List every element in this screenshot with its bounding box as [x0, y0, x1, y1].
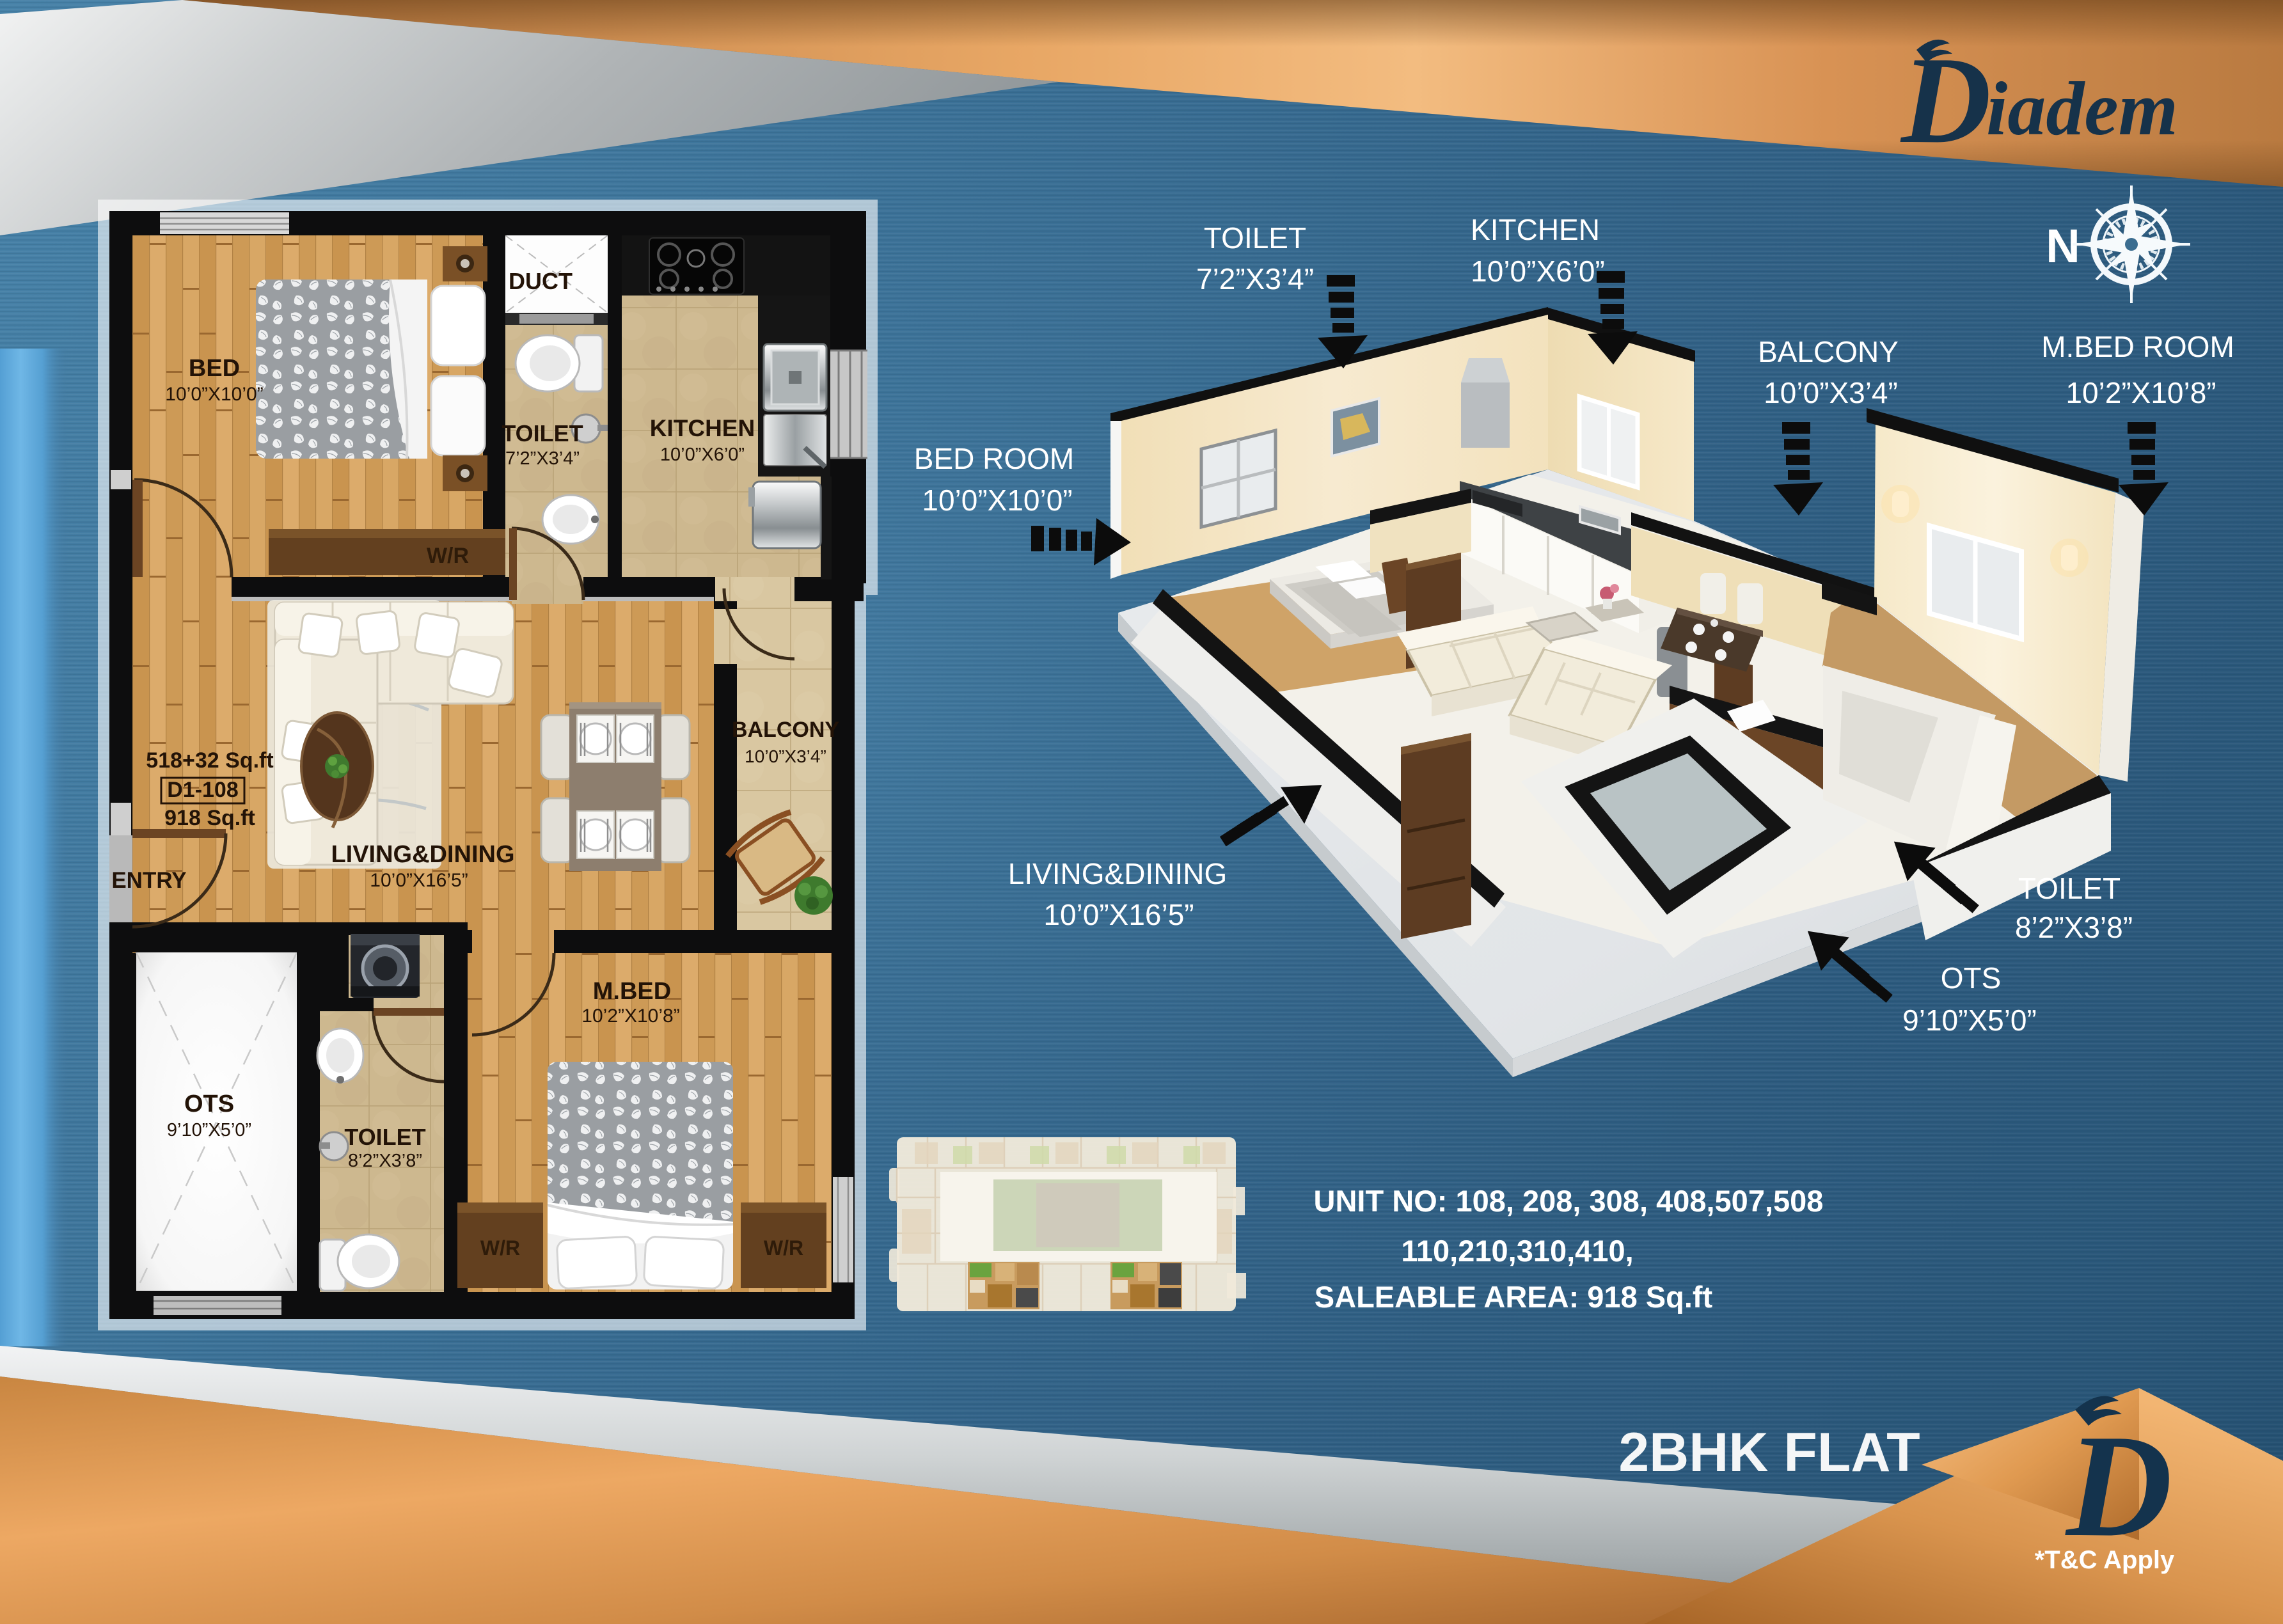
svg-text:TOILET: TOILET	[344, 1124, 425, 1150]
svg-text:TOILET: TOILET	[1204, 221, 1306, 255]
svg-text:W/R: W/R	[427, 544, 469, 568]
svg-text:OTS: OTS	[1941, 961, 2002, 995]
svg-text:W/R: W/R	[764, 1236, 803, 1259]
svg-text:BALCONY: BALCONY	[1758, 335, 1899, 368]
svg-text:2BHK FLAT: 2BHK FLAT	[1618, 1422, 1920, 1483]
svg-text:iadem: iadem	[1986, 66, 2178, 151]
svg-text:7’2”X3’4”: 7’2”X3’4”	[1196, 262, 1314, 296]
svg-text:D: D	[2065, 1404, 2172, 1567]
svg-text:M.BED ROOM: M.BED ROOM	[2041, 330, 2234, 363]
svg-text:BED ROOM: BED ROOM	[914, 442, 1074, 475]
svg-text:918 Sq.ft: 918 Sq.ft	[164, 806, 255, 830]
svg-text:10’0”X3’4”: 10’0”X3’4”	[745, 746, 826, 766]
svg-text:N: N	[2046, 219, 2080, 272]
svg-text:8’2”X3’8”: 8’2”X3’8”	[2015, 911, 2133, 944]
svg-text:TOILET: TOILET	[502, 420, 583, 446]
svg-text:10’0”X6’0”: 10’0”X6’0”	[1471, 255, 1605, 288]
svg-text:KITCHEN: KITCHEN	[650, 415, 755, 441]
svg-text:W/R: W/R	[480, 1236, 520, 1259]
svg-text:TOILET: TOILET	[2018, 872, 2121, 905]
svg-text:10’0”X10’0”: 10’0”X10’0”	[922, 484, 1072, 517]
svg-text:BALCONY: BALCONY	[732, 718, 839, 742]
svg-text:10’0”X3’4”: 10’0”X3’4”	[1764, 376, 1898, 409]
svg-text:10’2”X10’8”: 10’2”X10’8”	[2066, 376, 2216, 409]
svg-text:LIVING&DINING: LIVING&DINING	[1008, 857, 1228, 890]
svg-text:10’0”X16’5”: 10’0”X16’5”	[370, 870, 468, 891]
svg-text:M.BED: M.BED	[593, 978, 671, 1005]
svg-text:110,210,310,410,: 110,210,310,410,	[1401, 1234, 1633, 1268]
svg-text:ENTRY: ENTRY	[111, 868, 186, 893]
svg-text:10’2”X10’8”: 10’2”X10’8”	[581, 1005, 679, 1027]
svg-text:10’0”X6’0”: 10’0”X6’0”	[660, 445, 745, 465]
svg-text:SALEABLE AREA: 918 Sq.ft: SALEABLE AREA: 918 Sq.ft	[1315, 1280, 1713, 1314]
svg-text:518+32 Sq.ft: 518+32 Sq.ft	[146, 748, 273, 773]
svg-text:10’0”X16’5”: 10’0”X16’5”	[1043, 898, 1194, 931]
svg-text:UNIT NO: 108, 208, 308, 408,50: UNIT NO: 108, 208, 308, 408,507,508	[1314, 1184, 1824, 1218]
svg-text:8’2”X3’8”: 8’2”X3’8”	[348, 1151, 422, 1171]
svg-text:BED: BED	[189, 355, 240, 382]
svg-text:10’0”X10’0”: 10’0”X10’0”	[165, 384, 263, 405]
svg-text:DUCT: DUCT	[509, 268, 573, 294]
svg-text:OTS: OTS	[184, 1091, 234, 1117]
svg-text:LIVING&DINING: LIVING&DINING	[331, 841, 514, 868]
svg-text:D1-108: D1-108	[167, 778, 239, 802]
svg-text:9’10”X5’0”: 9’10”X5’0”	[1902, 1004, 2037, 1037]
svg-text:9’10”X5’0”: 9’10”X5’0”	[167, 1120, 251, 1140]
svg-text:KITCHEN: KITCHEN	[1471, 213, 1600, 246]
svg-text:7’2”X3’4”: 7’2”X3’4”	[505, 448, 580, 469]
